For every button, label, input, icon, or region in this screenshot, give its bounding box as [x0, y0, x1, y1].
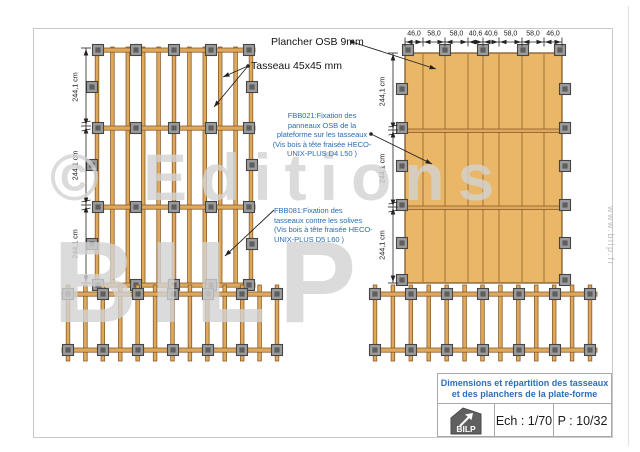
fixing-clip-inner: [444, 291, 449, 296]
fixing-clip-inner: [587, 347, 592, 352]
plan-sheet: 244,1 cm244,1 cm244,1 cm244,1 cm244,1 cm…: [0, 0, 640, 452]
fixing-clip-inner: [562, 125, 567, 130]
tasseau-joist: [203, 47, 207, 287]
section-dim-label: 244,1 cm: [71, 151, 80, 181]
panel-width-label: 58,0: [450, 31, 464, 38]
plancher-osb-label: Plancher OSB 9mm: [271, 36, 364, 48]
arrowhead: [223, 72, 230, 77]
fixing-clip-inner: [399, 125, 404, 130]
arrowhead: [406, 40, 413, 45]
panel-width-label: 46,0: [407, 31, 421, 38]
left-base-drawing: [62, 285, 283, 361]
arrowhead: [469, 40, 476, 45]
fixing-clip-inner: [133, 125, 138, 130]
fixing-clip-inner: [208, 47, 213, 52]
fixing-clip-inner: [408, 347, 413, 352]
fixing-clip-inner: [65, 347, 70, 352]
arrowhead: [523, 40, 530, 45]
fixing-clip-inner: [405, 47, 410, 52]
fixing-clip-inner: [249, 241, 254, 246]
fixing-clip-inner: [480, 347, 485, 352]
arrowhead: [476, 40, 483, 45]
scale-value: Ech : 1/70: [495, 404, 554, 437]
panel-width-label: 40,6: [484, 31, 498, 38]
fixing-clip-inner: [171, 125, 176, 130]
panel-width-label: 40,6: [469, 31, 483, 38]
section-dim-label: 244,1 cm: [71, 72, 80, 102]
fixing-clip-inner: [562, 163, 567, 168]
arrowhead: [424, 40, 431, 45]
bilp-logo-icon: BILP: [448, 406, 484, 436]
tasseau-joist: [141, 47, 145, 287]
fixing-clip-inner: [89, 84, 94, 89]
fixing-clip-inner: [274, 291, 279, 296]
fixing-clip-inner: [552, 347, 557, 352]
fixing-clip-inner: [480, 47, 485, 52]
bilp-logo-cell: BILP: [438, 404, 495, 437]
fixing-clip-inner: [171, 47, 176, 52]
fixing-clip-inner: [480, 291, 485, 296]
fixing-clip-inner: [562, 277, 567, 282]
fixing-clip-inner: [135, 291, 140, 296]
drawing-title: Dimensions et répartition des tasseaux e…: [438, 374, 611, 404]
arrowhead: [484, 40, 491, 45]
tasseau-label: Tasseau 45x45 mm: [251, 60, 342, 72]
fixing-clip-inner: [205, 291, 210, 296]
fixing-clip-inner: [516, 291, 521, 296]
fbb021-line: FBB021:Fixation des: [268, 111, 376, 121]
arrowhead: [545, 40, 552, 45]
tasseau-joist: [126, 47, 130, 287]
fixing-clip-inner: [399, 277, 404, 282]
fixing-clip-inner: [95, 282, 100, 287]
fixing-clip-inner: [587, 291, 592, 296]
arrowhead: [555, 40, 562, 45]
fixing-clip-inner: [557, 47, 562, 52]
fixing-clip-inner: [562, 86, 567, 91]
fixing-clip-inner: [399, 240, 404, 245]
arrowhead: [461, 40, 468, 45]
arrowhead: [492, 40, 499, 45]
tasseau-joist: [218, 47, 222, 287]
fixing-clip-inner: [408, 291, 413, 296]
tasseau-joist: [157, 47, 161, 287]
fixing-clip-inner: [444, 347, 449, 352]
fixing-clip-inner: [65, 291, 70, 296]
section-dim-label: 244,1 cm: [71, 229, 80, 259]
arrowhead: [416, 40, 423, 45]
panel-width-label: 58,0: [427, 31, 441, 38]
right-base-drawing: [370, 285, 598, 361]
fixing-clip-inner: [170, 291, 175, 296]
fbb081-line: UNIX-PLUS D5 L60 ): [274, 235, 390, 245]
fbb021-line: UNIX-PLUS D4 L50 ): [268, 149, 376, 159]
arrowhead: [391, 276, 396, 283]
right-osb-drawing: [397, 45, 571, 286]
bilp-logo-text: BILP: [456, 424, 476, 434]
fixing-clip-inner: [399, 86, 404, 91]
fbb021-line: plateforme sur les tasseaux: [268, 130, 376, 140]
section-dim-label: 244,1 cm: [378, 154, 387, 184]
fixing-clip-inner: [100, 347, 105, 352]
fixing-clip-inner: [89, 162, 94, 167]
fixing-clip-inner: [562, 240, 567, 245]
arrowhead: [537, 40, 544, 45]
fixing-clip-inner: [516, 347, 521, 352]
fixing-clip-inner: [239, 291, 244, 296]
fbb021-line: (Vis bois à tête fraisée HECO-: [268, 140, 376, 150]
fixing-clip-inner: [133, 204, 138, 209]
panel-rail: [405, 129, 562, 132]
fixing-clip-inner: [95, 125, 100, 130]
fixing-clip-inner: [246, 282, 251, 287]
fixing-clip-inner: [372, 291, 377, 296]
fixing-clip-inner: [95, 204, 100, 209]
arrowhead: [438, 40, 445, 45]
tasseau-joist: [172, 47, 176, 287]
panel-width-label: 46,0: [546, 31, 560, 38]
fixing-clip-inner: [249, 84, 254, 89]
fixing-clip-inner: [246, 204, 251, 209]
fixing-clip-inner: [100, 291, 105, 296]
fbb021-note: FBB021:Fixation des panneaux OSB de la p…: [268, 111, 376, 159]
fixing-clip-inner: [520, 47, 525, 52]
fixing-clip-inner: [205, 347, 210, 352]
arrowhead: [500, 40, 507, 45]
fixing-clip-inner: [133, 47, 138, 52]
arrowhead: [515, 40, 522, 45]
page-number: P : 10/32: [554, 404, 611, 437]
arrowhead: [84, 49, 89, 56]
fixing-clip-inner: [399, 202, 404, 207]
fbb081-line: (Vis bois à tête fraisée HECO-: [274, 225, 390, 235]
fixing-clip-inner: [562, 202, 567, 207]
fixing-clip-inner: [399, 163, 404, 168]
fixing-clip-inner: [552, 291, 557, 296]
fixing-clip-inner: [239, 347, 244, 352]
panel-width-label: 58,0: [526, 31, 540, 38]
fixing-clip-inner: [89, 241, 94, 246]
tasseau-joist: [188, 47, 192, 287]
fixing-clip-inner: [249, 162, 254, 167]
fixing-clip-inner: [372, 347, 377, 352]
fbb081-note: FBB081:Fixation des tasseaux contre les …: [274, 206, 390, 244]
drawing-title-line2: et des planchers de la plate-forme: [452, 389, 598, 400]
fixing-clip-inner: [246, 47, 251, 52]
fixing-clip-inner: [246, 125, 251, 130]
section-dim-label: 244,1 cm: [378, 77, 387, 107]
fixing-clip-inner: [170, 347, 175, 352]
fixing-clip-inner: [442, 47, 447, 52]
fbb021-line: panneaux OSB de la: [268, 121, 376, 131]
fixing-clip-inner: [135, 347, 140, 352]
fixing-clip-inner: [274, 347, 279, 352]
panel-rail: [405, 206, 562, 209]
fixing-clip-inner: [171, 204, 176, 209]
arrowhead: [446, 40, 453, 45]
tasseau-joist: [111, 47, 115, 287]
fbb081-line: tasseaux contre les solives: [274, 216, 390, 226]
left-frame-drawing: [87, 45, 258, 291]
title-block: Dimensions et répartition des tasseaux e…: [437, 373, 612, 437]
arrowhead: [84, 276, 89, 283]
fbb081-line: FBB081:Fixation des: [274, 206, 390, 216]
panel-width-label: 58,0: [504, 31, 518, 38]
fixing-clip-inner: [208, 125, 213, 130]
fixing-clip-inner: [95, 47, 100, 52]
fixing-clip-inner: [208, 204, 213, 209]
drawing-title-line1: Dimensions et répartition des tasseaux: [441, 378, 609, 389]
